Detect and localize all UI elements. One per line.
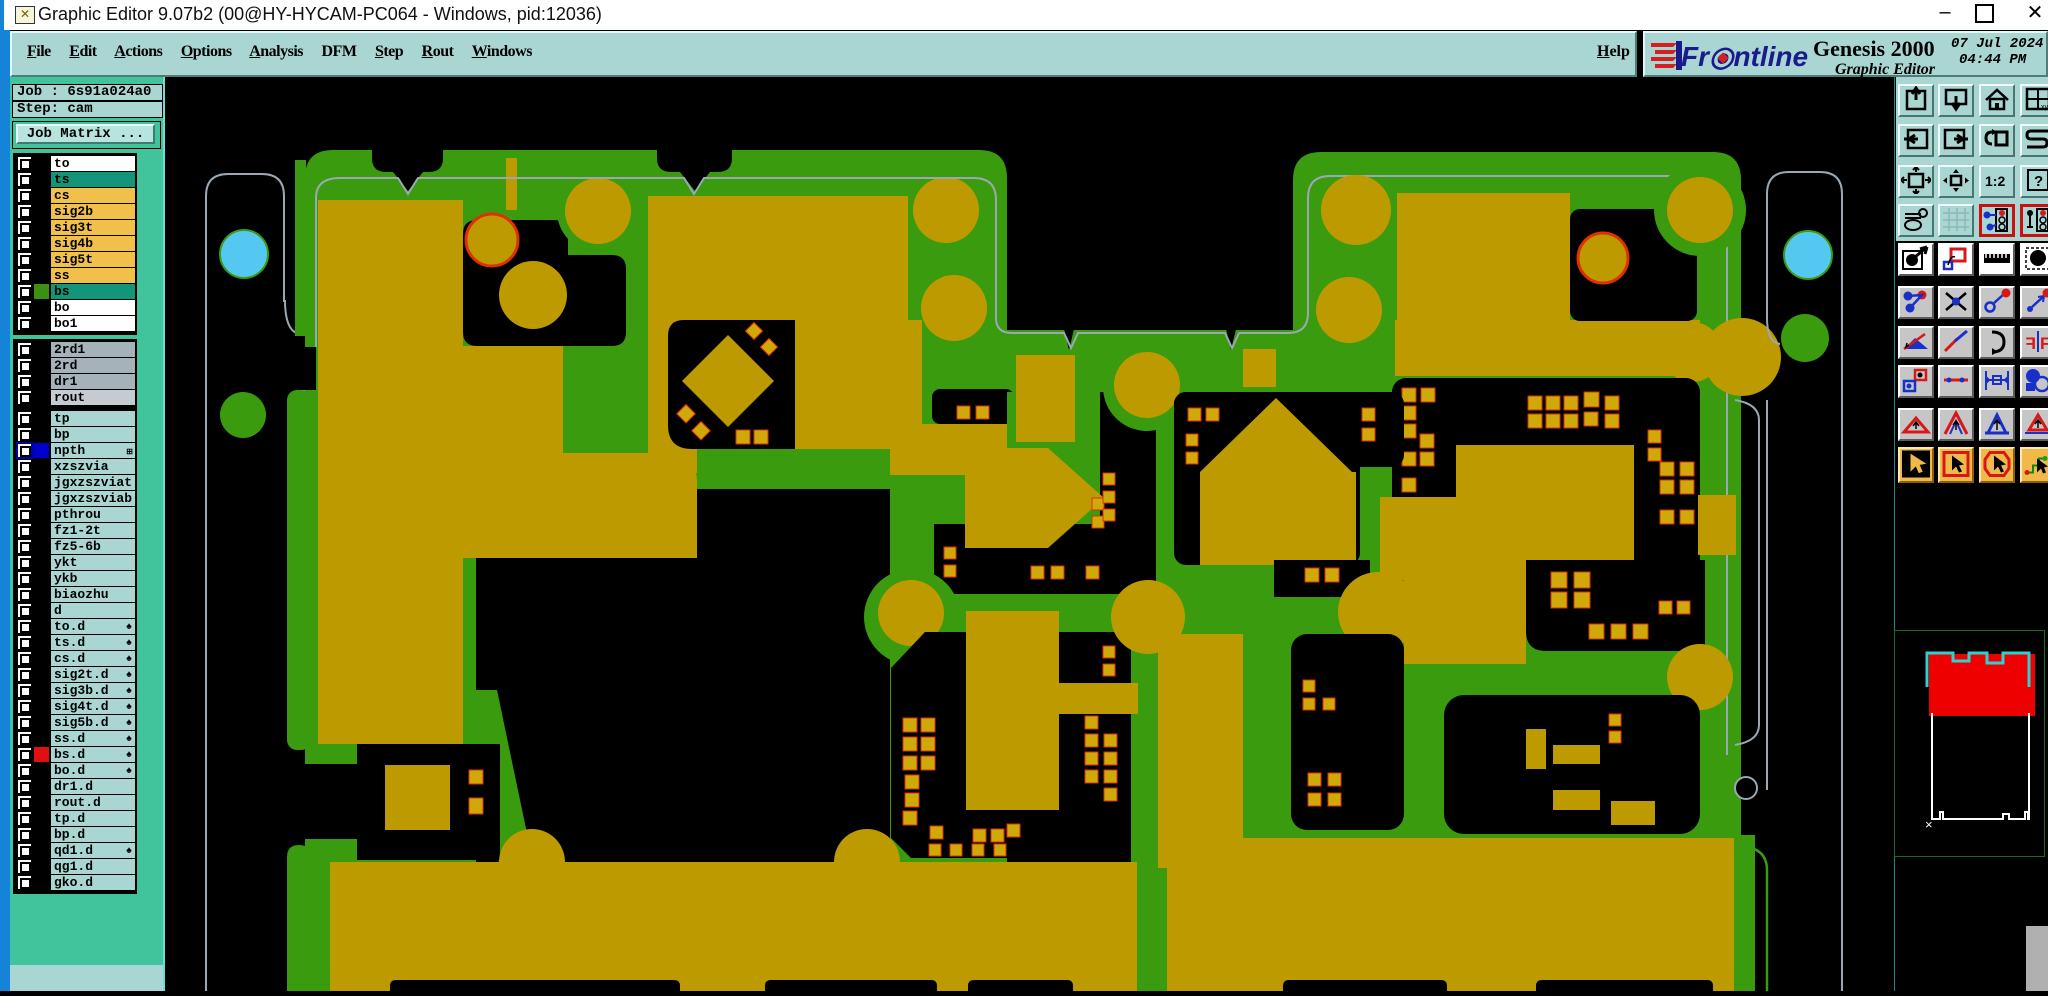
svg-text:×: × bbox=[1925, 817, 1933, 831]
svg-text:F: F bbox=[2040, 334, 2048, 353]
svg-text:xy: xy bbox=[2041, 104, 2048, 111]
svg-text:F: F bbox=[2026, 334, 2036, 353]
svg-text:?: ? bbox=[2034, 173, 2043, 190]
svg-text:1:2: 1:2 bbox=[1985, 173, 2005, 189]
